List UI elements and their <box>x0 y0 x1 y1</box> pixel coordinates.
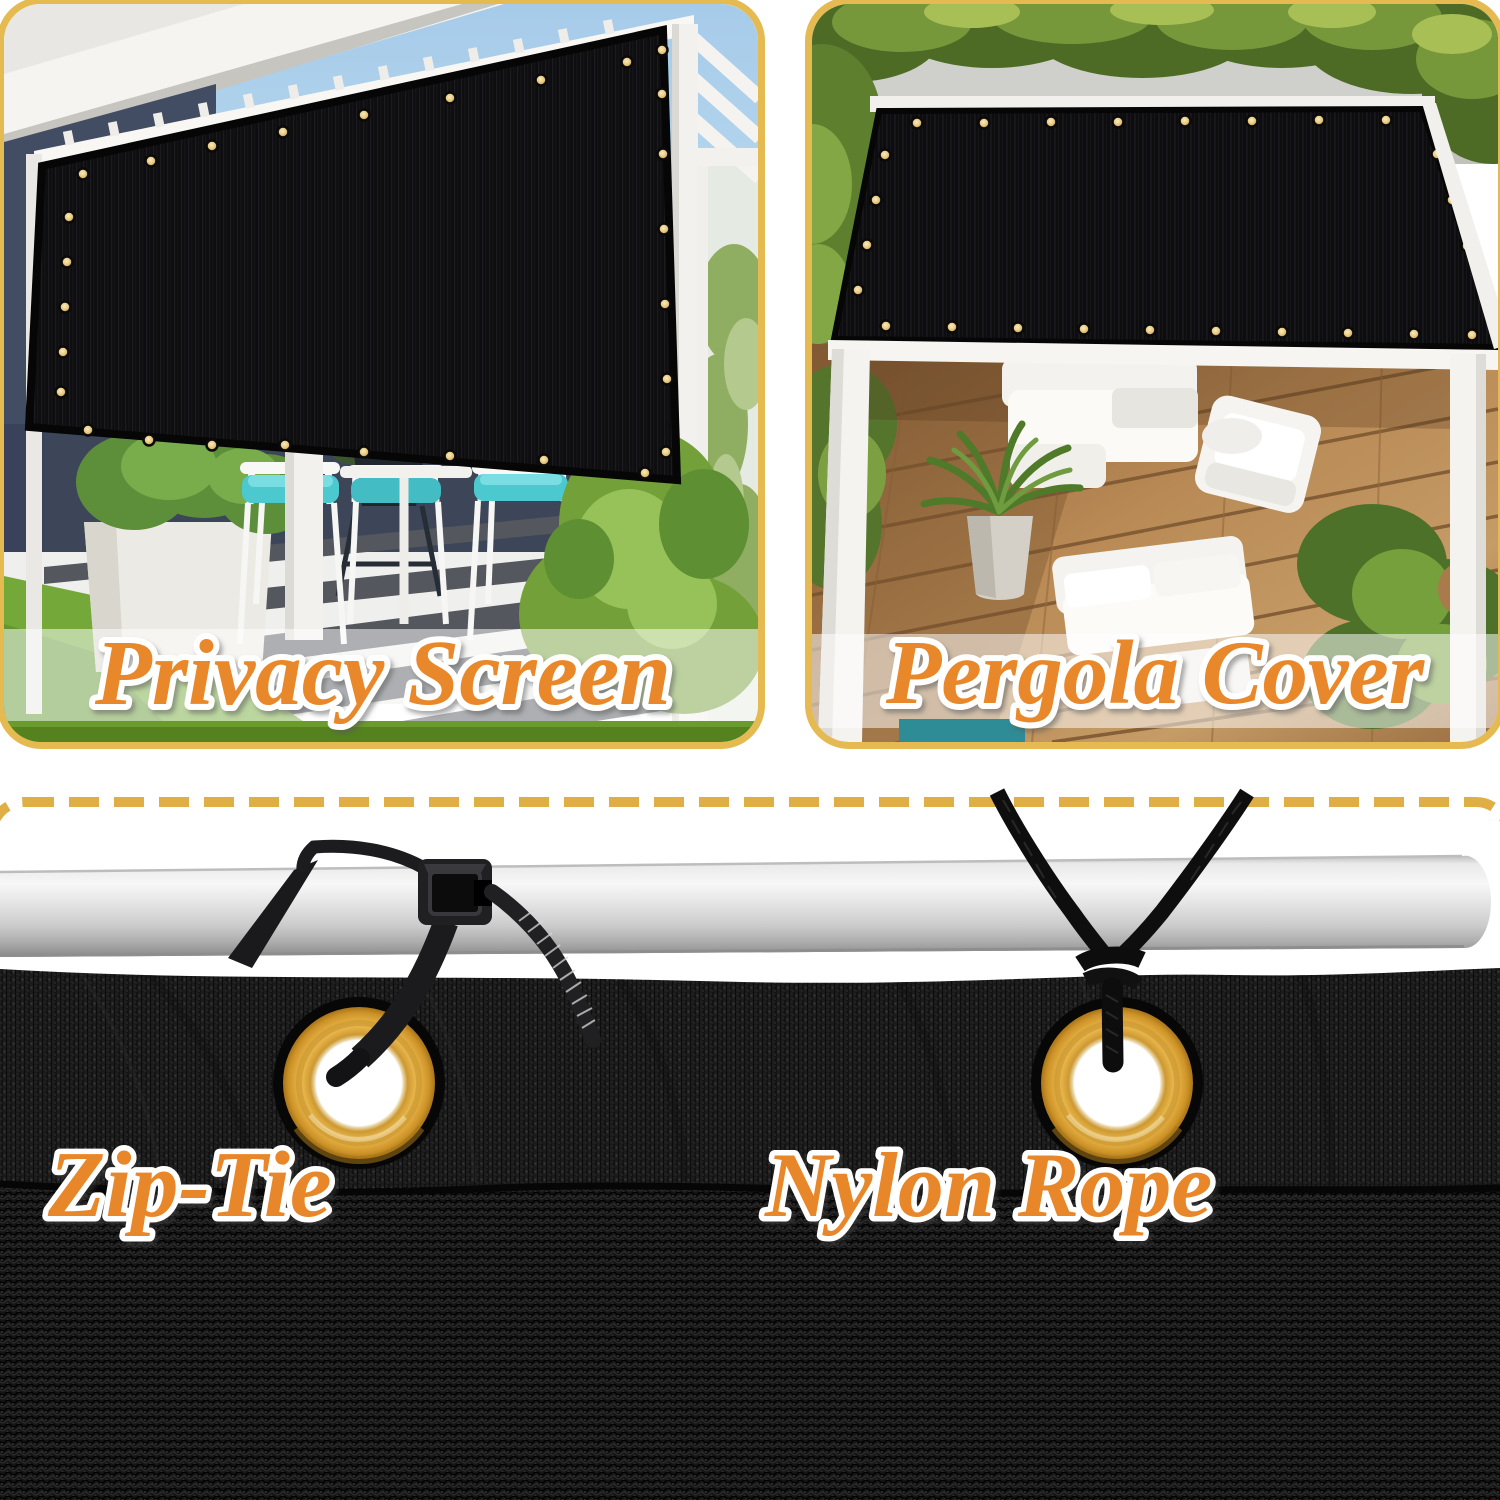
svg-text:Privacy Screen: Privacy Screen <box>94 622 671 725</box>
svg-text:Pergola Cover: Pergola Cover <box>885 622 1426 723</box>
svg-text:Nylon Rope: Nylon Rope <box>764 1134 1212 1236</box>
svg-text:Zip-Tie: Zip-Tie <box>47 1133 332 1237</box>
